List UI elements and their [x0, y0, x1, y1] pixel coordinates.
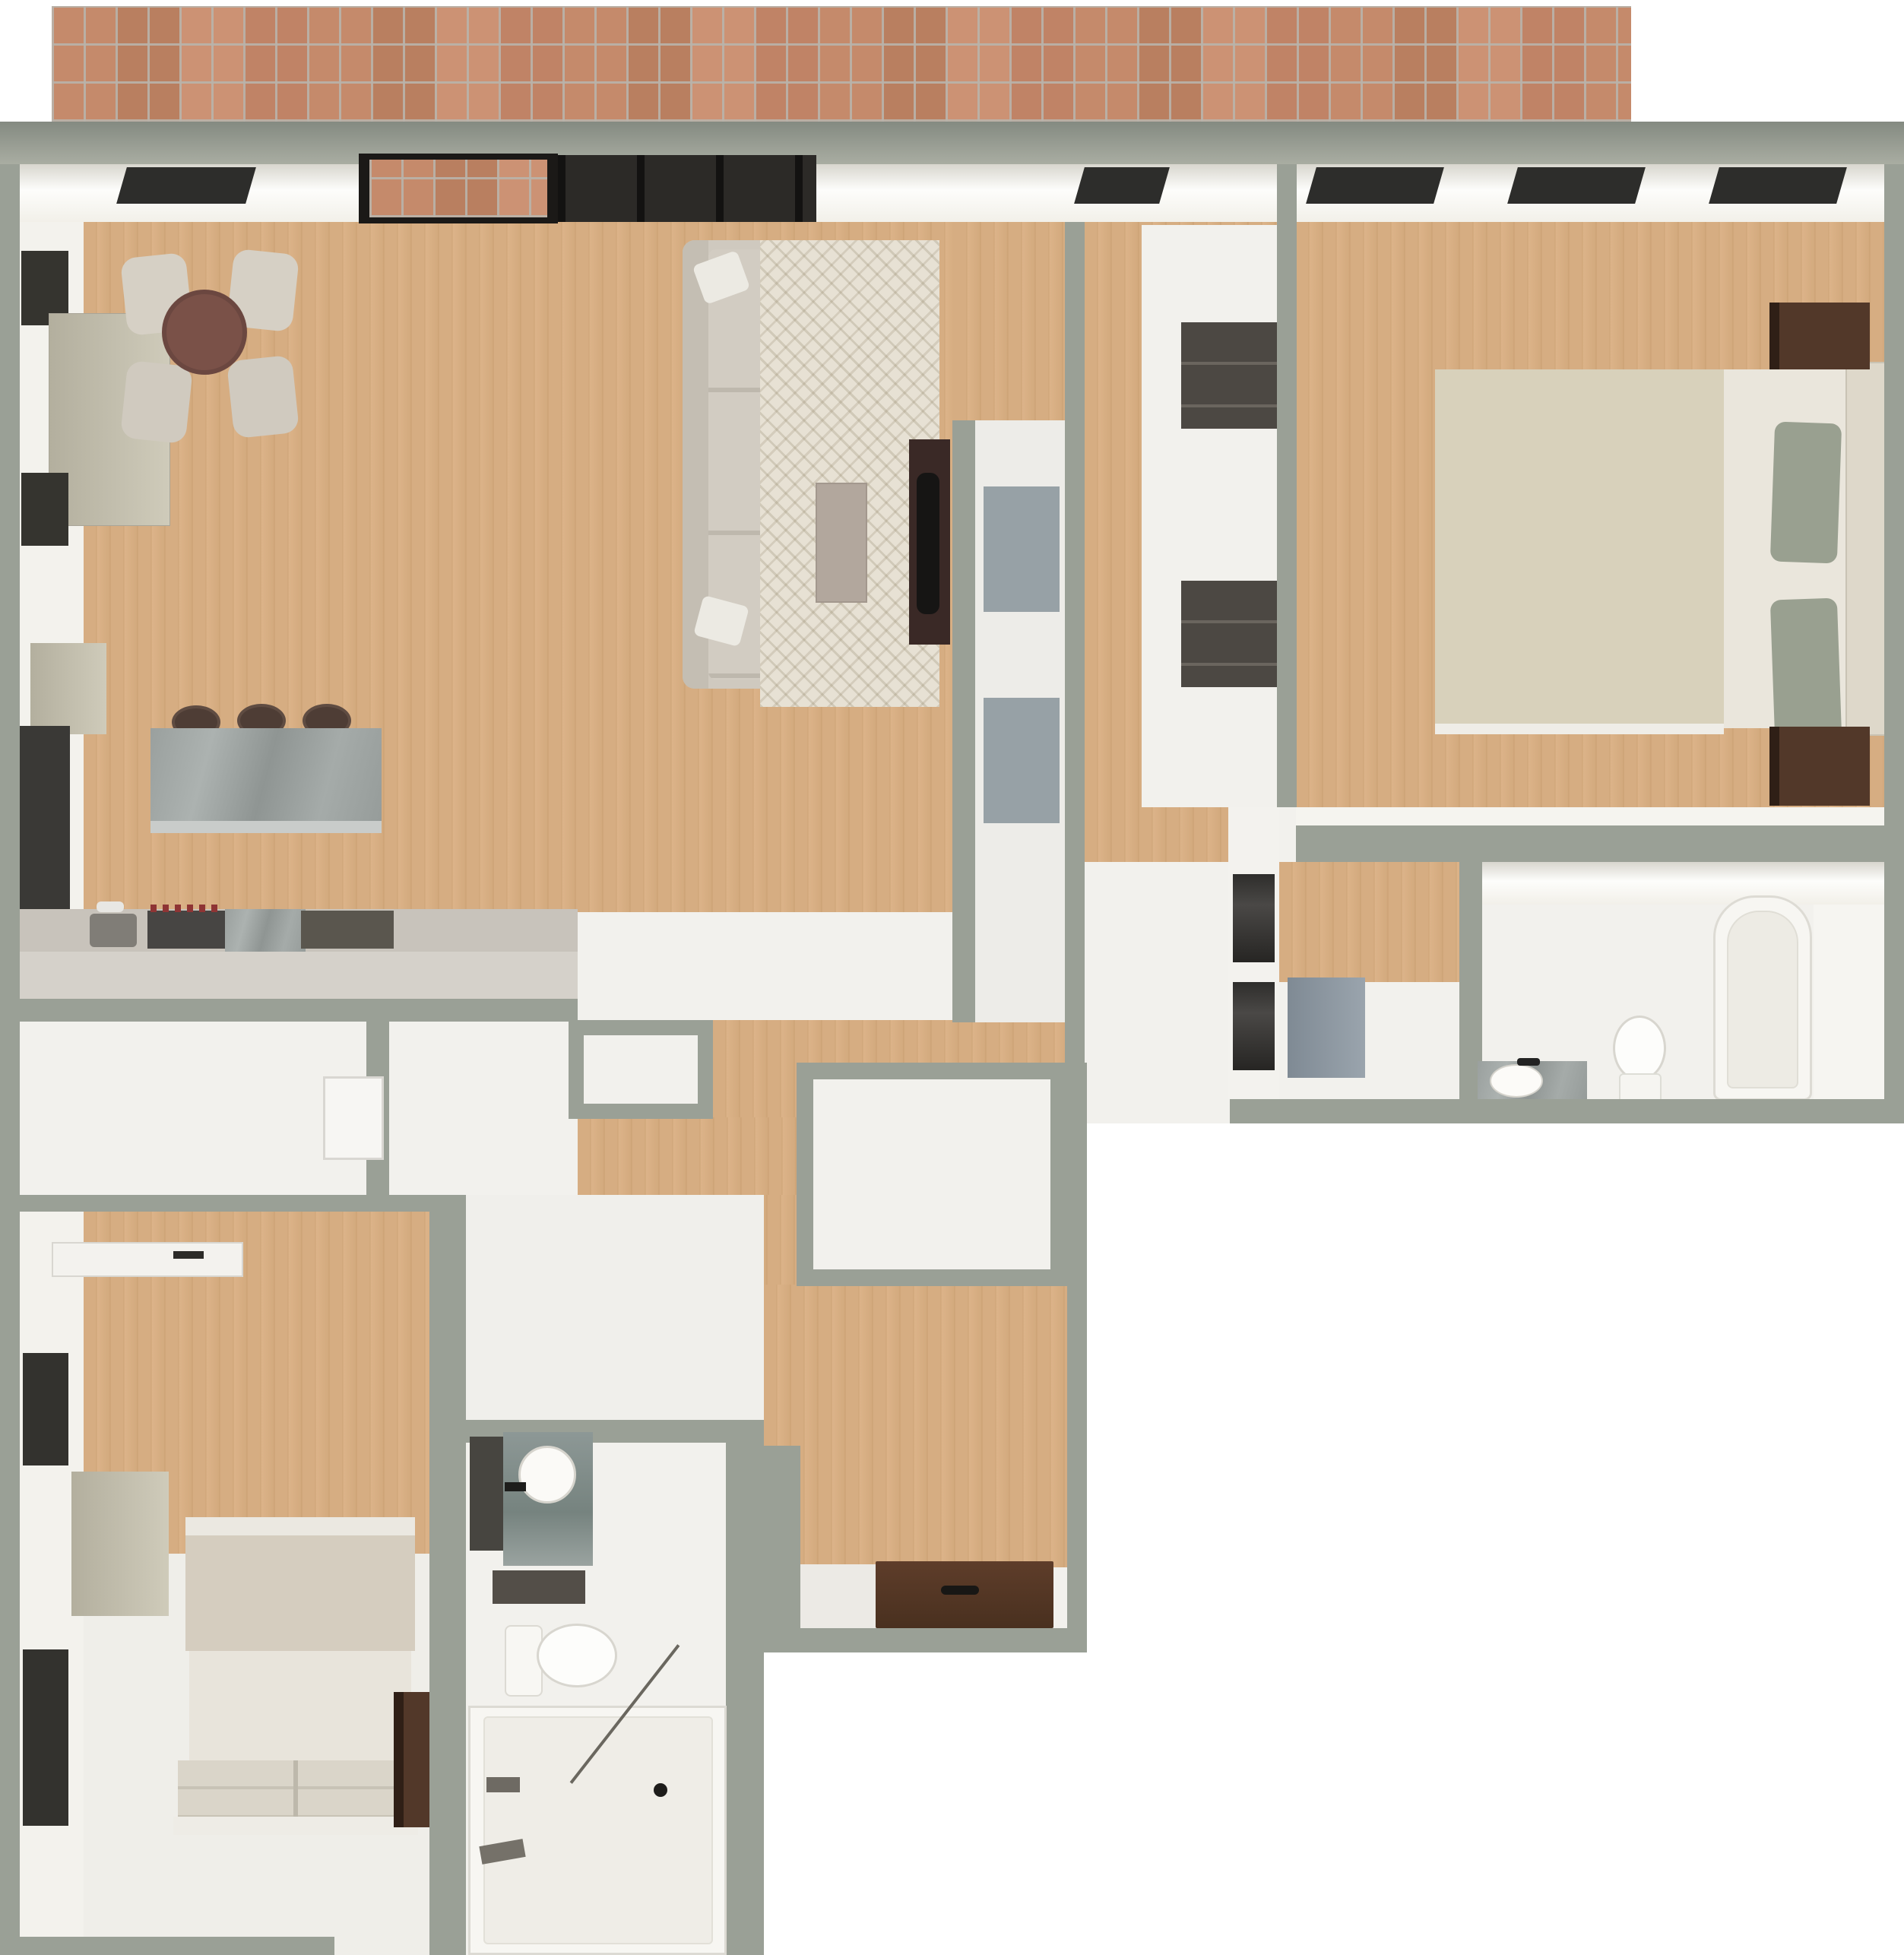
east-wall — [1884, 164, 1904, 1123]
bedroom2-window-recess-2 — [23, 1649, 68, 1826]
wall-corridor-east — [1067, 1063, 1087, 1652]
closet-box — [323, 1076, 384, 1160]
bath2-faucet-icon — [505, 1482, 526, 1491]
kitchen-cabinet-dark-2 — [1181, 581, 1277, 687]
bathtub2-mixer-icon — [486, 1777, 520, 1792]
bed1-duvet — [1435, 369, 1724, 728]
bed2-headboard — [185, 1535, 415, 1651]
kitchen-cabinet-run — [1142, 225, 1277, 807]
wall-oven-upper — [1233, 874, 1275, 962]
bed1-pillow-2 — [1770, 598, 1842, 740]
pantry-room — [569, 1020, 713, 1119]
wall-bottom-left — [20, 1937, 334, 1955]
hall-wood-floor-c — [578, 1117, 797, 1195]
west-wall — [0, 164, 20, 1955]
bath1-east-wall-face — [1814, 905, 1884, 1101]
bedroom2-sideboard — [71, 1472, 169, 1616]
hall-white-floor — [466, 1195, 764, 1420]
hall-wood-floor-a — [713, 1020, 1067, 1063]
wall-bedroom2-north — [20, 1195, 430, 1212]
entry-door — [876, 1561, 1053, 1628]
bath1-vessel-sink — [1490, 1064, 1543, 1098]
kitchen-counter-face — [20, 952, 578, 999]
bath2-shelf — [493, 1570, 585, 1604]
toilet2-bowl — [537, 1624, 617, 1687]
kitchen-counter-sink — [90, 914, 137, 947]
nightstand-bed1-north — [1769, 303, 1870, 369]
dining-chair-3 — [120, 360, 193, 444]
outside-mask-south — [764, 1652, 1087, 1955]
west-cabinet-mid — [30, 643, 106, 734]
cooktop — [147, 911, 225, 949]
bedroom2-desk-items — [173, 1251, 204, 1259]
dining-chair-4 — [227, 355, 299, 439]
kitchen-counter-marble-seg — [225, 909, 306, 952]
bath1-ceiling-band — [1481, 862, 1884, 905]
bedroom2-window-recess-1 — [23, 1353, 68, 1465]
skylight-bedroom-icon-1 — [1306, 167, 1444, 204]
dining-table-round — [162, 290, 247, 375]
outside-mask-east — [1087, 1123, 1904, 1955]
entry-door-handle-icon — [941, 1586, 979, 1595]
closet-zone-floor — [20, 1022, 578, 1195]
bed2-headboard-strip — [185, 1517, 415, 1535]
wall-oven-lower — [1233, 982, 1275, 1070]
closet-strip-shelf-2 — [984, 698, 1060, 823]
bath2-mirror-panel — [470, 1437, 503, 1551]
bed2-mattress — [189, 1651, 411, 1763]
nightstand-bed1-south — [1769, 727, 1870, 806]
skylight-bedroom-icon-2 — [1507, 167, 1646, 204]
north-wall — [0, 122, 1904, 164]
wall-kitchen-west — [1065, 222, 1085, 1063]
coffee-table — [816, 483, 867, 603]
west-wall-window-recess-3 — [20, 726, 70, 912]
wall-bedroom2-east — [429, 1195, 466, 1955]
wall-kitchen-east — [1277, 164, 1297, 807]
washer-unit — [1288, 978, 1365, 1078]
bedroom1-south-sliver — [1296, 807, 1884, 825]
west-wall-window-recess-2 — [21, 473, 68, 546]
skylight-bedroom-icon-3 — [1709, 167, 1847, 204]
bedroom2-desk — [52, 1242, 243, 1277]
wall-entry-west — [762, 1446, 800, 1631]
toilet1-bowl — [1613, 1016, 1666, 1081]
bathtub1-basin — [1727, 911, 1798, 1088]
bed1-pillow-1 — [1770, 422, 1842, 564]
skylight-living-icon — [116, 167, 256, 204]
clerestory-window-brick-view — [369, 160, 547, 217]
wall-bath2-east — [726, 1420, 764, 1955]
clerestory-window-glass — [558, 155, 816, 222]
bath1-faucet-icon — [1517, 1058, 1540, 1066]
bed1-foot-strip — [1435, 724, 1724, 734]
bed2-platform — [173, 1817, 418, 1835]
kitchen-island-edge — [150, 821, 382, 833]
den-room — [797, 1063, 1067, 1286]
closet-strip-shelf-1 — [984, 486, 1060, 612]
kitchen-island-top — [150, 728, 382, 822]
bathtub2-drain-icon — [654, 1783, 667, 1797]
skylight-kitchen-icon — [1074, 167, 1170, 204]
brick-exterior-wall — [52, 6, 1631, 122]
wall-bath1-south — [1230, 1099, 1904, 1123]
laundry-hall-wood-floor — [1279, 862, 1459, 982]
kitchen-counter-faucet-icon — [97, 901, 124, 912]
wall-counter-south — [20, 999, 578, 1022]
wall-living-east — [952, 420, 975, 1022]
wall-entry-south — [762, 1628, 1083, 1652]
cooktop-knobs — [150, 905, 222, 912]
floor-plan — [0, 0, 1904, 1955]
bed1-headboard — [1845, 362, 1888, 736]
bath2-vessel-sink — [518, 1446, 576, 1503]
tv-flatscreen — [917, 473, 939, 614]
wall-bedroom1-south — [1296, 825, 1904, 862]
entry-corridor-wood-floor — [764, 1285, 1067, 1567]
kitchen-cabinet-dark-1 — [1181, 322, 1277, 429]
north-hall-wood-floor — [954, 222, 1065, 424]
bed2-folded-blanket — [178, 1760, 417, 1818]
kitchen-counter-dark-seg — [301, 911, 394, 949]
